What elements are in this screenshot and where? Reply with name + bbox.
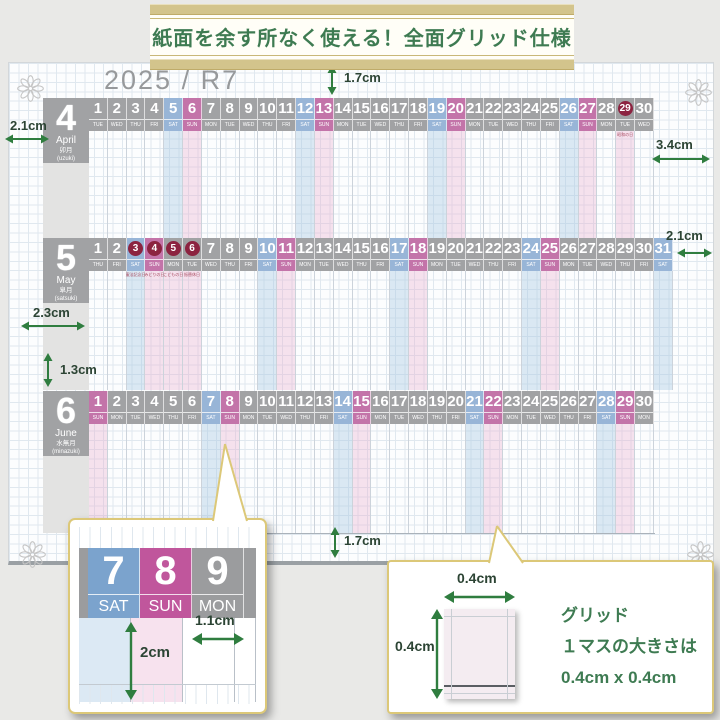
day-cell: 5SAT [164,98,183,131]
day-column [409,271,428,390]
magnified-cell-mon: 9 MON [192,548,244,618]
month-number: 4 [43,98,89,135]
horizontal-arrow [677,247,712,259]
day-column [579,131,598,238]
day-column [296,271,315,390]
vertical-arrow [42,353,54,387]
day-cell: 5THU [164,391,183,424]
day-column [447,131,466,238]
banner-text: 紙面を余す所なく使える！全面グリッド仕様 [152,28,571,50]
horizontal-arrow [5,133,49,145]
day-column [315,131,334,238]
day-column [390,271,409,390]
day-cell: 26SAT [560,98,579,131]
day-cell: 11SUN [277,238,296,271]
day-column [428,271,447,390]
day-cell: 3TUE [127,391,146,424]
horizontal-arrow [652,153,710,165]
day-cell: 22SUN [484,391,503,424]
day-cell: 1TUE [89,98,108,131]
day-column [334,131,353,238]
day-cell: 27FRI [579,391,598,424]
day-cell: 4FRI [145,98,164,131]
day-cell: 29SUN [616,391,635,424]
measure-top-margin: 1.7cm [344,70,381,85]
month-name-en: May [43,275,89,287]
day-column [560,271,579,390]
day-column [108,131,127,238]
grid-description-line: 0.4cm x 0.4cm [561,662,697,693]
day-cell: 19THU [428,391,447,424]
day-cell: 3SAT [127,238,146,271]
day-cell: 2MON [108,391,127,424]
day-column [334,271,353,390]
banner-top-bar [150,4,574,15]
day-column [296,131,315,238]
day-cell: 10TUE [258,391,277,424]
day-column [654,271,673,390]
header-banner: 紙面を余す所なく使える！全面グリッド仕様 [150,4,574,70]
day-column [315,271,334,390]
vertical-arrow [430,609,444,699]
day-column [635,271,654,390]
day-column [296,424,315,533]
day-cell: 7WED [202,238,221,271]
day-cell: 8THU [221,238,240,271]
day-column [145,424,164,533]
day-cell: 20TUE [447,238,466,271]
day-cell: 11FRI [277,98,296,131]
grid-width-label: 0.4cm [457,570,497,586]
horizontal-arrow [192,632,244,646]
day-column [447,271,466,390]
day-cell: 25SUN [541,238,560,271]
month-column-strip [43,163,89,238]
day-cell: 19MON [428,238,447,271]
day-column [635,424,654,533]
day-cell: 18FRI [409,98,428,131]
day-column [315,424,334,533]
day-column [258,131,277,238]
day-column [503,271,522,390]
vertical-arrow [124,622,138,700]
magnified-cell-sat: 7 SAT [88,548,140,618]
day-column [145,131,164,238]
cell-size-callout: 7 SAT 8 SUN 9 MON 2cm 1.1cm [68,518,267,714]
month-name-jp: 卯月 [43,147,89,155]
day-cell: 15TUE [353,98,372,131]
day-cell: 20SUN [447,98,466,131]
grid-description-line: １マスの大きさは [561,631,697,662]
day-column [89,131,108,238]
day-column [522,131,541,238]
horizontal-arrow [21,320,85,332]
month-name-jp: 皐月 [43,287,89,295]
month-name-jp: 水無月 [43,440,89,448]
day-cell: 9MON [240,391,259,424]
month-name-reading: (satsuki) [43,295,89,303]
day-cell: 28WED [597,238,616,271]
day-cell: 2FRI [108,238,127,271]
day-column [522,424,541,533]
day-column [484,271,503,390]
month-name-en: April [43,135,89,147]
day-cell: 21SAT [466,391,485,424]
day-cell: 26MON [560,238,579,271]
day-cell: 26THU [560,391,579,424]
day-cell: 12MON [296,238,315,271]
day-cell: 8SUN [221,391,240,424]
day-column [597,424,616,533]
magnified-weekday: SUN [140,595,191,618]
day-cell: 18SUN [409,238,428,271]
magnified-header-band: 7 SAT 8 SUN 9 MON [79,548,256,618]
measure-may-right: 2.1cm [666,228,703,243]
day-column: 昭和の日 [616,131,635,238]
day-cell: 15THU [353,238,372,271]
day-column [183,424,202,533]
day-column [522,271,541,390]
day-cell: 24THU [522,98,541,131]
day-cell: 16WED [371,98,390,131]
magnified-grid-cell [444,609,515,699]
day-cell: 4SUN [145,238,164,271]
measure-bottom-margin: 1.7cm [344,533,381,548]
day-column: 憲法記念日 [127,271,146,390]
horizontal-arrow [444,590,515,604]
day-column [635,131,654,238]
day-cell: 30MON [635,391,654,424]
day-cell: 27SUN [579,98,598,131]
day-column [258,424,277,533]
day-column [428,131,447,238]
day-column [466,131,485,238]
day-cell: 20FRI [447,391,466,424]
magnified-cell-sun: 8 SUN [140,548,192,618]
day-column [390,131,409,238]
day-column [108,271,127,390]
day-cell: 17SAT [390,238,409,271]
day-cell: 14SAT [334,391,353,424]
day-column [560,131,579,238]
day-cell: 15SUN [353,391,372,424]
day-column [579,271,598,390]
day-column [503,424,522,533]
magnified-weekday: SAT [88,595,139,618]
cell-width-label: 1.1cm [195,612,235,628]
day-cell: 21WED [466,238,485,271]
day-cell: 17TUE [390,391,409,424]
right-callout-pointer [485,524,527,564]
day-column [447,424,466,533]
day-column: こどもの日 [164,271,183,390]
day-cell: 3THU [127,98,146,131]
day-column [560,424,579,533]
day-column [183,131,202,238]
day-column [202,271,221,390]
day-cell: 10SAT [258,238,277,271]
day-cell: 25WED [541,391,560,424]
day-cell: 21MON [466,98,485,131]
product-image: 紙面を余す所なく使える！全面グリッド仕様 2025 / R7 4 April 卯… [0,0,720,720]
day-column [89,424,108,533]
day-cell: 13FRI [315,391,334,424]
day-column [371,271,390,390]
day-column [579,424,598,533]
day-cell: 19SAT [428,98,447,131]
day-column: みどりの日 [145,271,164,390]
day-cell: 2WED [108,98,127,131]
day-cell: 14WED [334,238,353,271]
day-cell: 10THU [258,98,277,131]
flower-icon [17,75,44,102]
day-cell: 11WED [277,391,296,424]
day-column [353,424,372,533]
month-label-block: 5 May 皐月 (satsuki) [43,238,89,303]
day-cell: 23WED [503,98,522,131]
measure-row-gap: 1.3cm [60,362,97,377]
day-column [466,424,485,533]
day-column [484,131,503,238]
day-cell: 8TUE [221,98,240,131]
day-column [466,271,485,390]
day-cell: 6SUN [183,98,202,131]
day-column [484,424,503,533]
day-cell: 22TUE [484,98,503,131]
day-column [221,271,240,390]
day-cell: 16FRI [371,238,390,271]
day-cell: 18WED [409,391,428,424]
day-cell: 30FRI [635,238,654,271]
day-cell: 27TUE [579,238,598,271]
day-column [428,424,447,533]
day-cell: 22THU [484,238,503,271]
day-column [503,131,522,238]
grid-height-label: 0.4cm [395,638,435,654]
mini-grid-bottom [79,684,256,704]
day-cell: 1THU [89,238,108,271]
day-column [353,131,372,238]
day-column [221,131,240,238]
flower-icon [19,541,46,568]
day-column [258,271,277,390]
month-name-reading: (uzuki) [43,155,89,163]
day-column [240,131,259,238]
day-column [334,424,353,533]
day-cell: 28SAT [597,391,616,424]
mini-grid-top [79,527,256,549]
day-cell: 14MON [334,98,353,131]
magnified-day-number: 7 [88,548,139,595]
day-cell: 9FRI [240,238,259,271]
grid-description-line: グリッド [561,600,697,631]
day-cell: 28MON [597,98,616,131]
day-cell: 7SAT [202,391,221,424]
day-column [597,271,616,390]
day-column [371,424,390,533]
day-column [541,131,560,238]
day-column [541,271,560,390]
day-column [202,131,221,238]
left-callout-pointer [205,442,255,522]
cell-height-label: 2cm [140,644,170,661]
banner-bottom-bar [150,59,574,70]
calendar-sheet: 2025 / R7 4 April 卯月 (uzuki) 1TUE2WED3TH… [8,62,714,565]
month-label-block: 4 April 卯月 (uzuki) [43,98,89,163]
day-cell: 6TUE [183,238,202,271]
grid-description: グリッド １マスの大きさは 0.4cm x 0.4cm [561,600,697,693]
day-cell: 7MON [202,98,221,131]
day-column [409,424,428,533]
day-cell: 29THU [616,238,635,271]
measure-right-margin: 3.4cm [656,137,693,152]
day-column [108,424,127,533]
magnified-day-number: 9 [192,548,243,595]
day-cell: 5MON [164,238,183,271]
day-column [277,271,296,390]
day-cell: 24TUE [522,391,541,424]
magnified-day-number: 8 [140,548,191,595]
measure-month-column: 2.3cm [33,305,70,320]
day-column [127,424,146,533]
day-cell: 24SAT [522,238,541,271]
day-column [541,424,560,533]
day-column [616,271,635,390]
day-column [127,131,146,238]
day-cell: 6FRI [183,391,202,424]
day-cell: 16MON [371,391,390,424]
measure-month-block: 2.1cm [10,118,47,133]
day-cell: 29TUE [616,98,635,131]
day-column [240,271,259,390]
day-cell: 25FRI [541,98,560,131]
day-column [390,424,409,533]
day-column [409,131,428,238]
flower-icon [685,79,712,106]
day-column [371,131,390,238]
month-label-block: 6 June 水無月 (minazuki) [43,391,89,456]
month-name-en: June [43,428,89,440]
day-column [616,424,635,533]
day-cell: 23FRI [503,238,522,271]
day-column [277,424,296,533]
month-number: 5 [43,238,89,275]
grid-size-callout: 0.4cm 0.4cm グリッド １マスの大きさは 0.4cm x 0.4cm [387,560,714,714]
vertical-arrow [329,527,341,558]
day-cell: 12SAT [296,98,315,131]
day-column [164,424,183,533]
day-column [353,271,372,390]
day-cell: 12THU [296,391,315,424]
day-cell: 4WED [145,391,164,424]
day-column [277,131,296,238]
day-cell: 1SUN [89,391,108,424]
day-column [597,131,616,238]
day-cell: 17THU [390,98,409,131]
day-cell: 13SUN [315,98,334,131]
day-column: 振替休日 [183,271,202,390]
month-name-reading: (minazuki) [43,448,89,456]
day-cell: 23MON [503,391,522,424]
month-number: 6 [43,391,89,428]
day-cell: 30WED [635,98,654,131]
day-column [164,131,183,238]
day-cell: 9WED [240,98,259,131]
day-cell: 13TUE [315,238,334,271]
